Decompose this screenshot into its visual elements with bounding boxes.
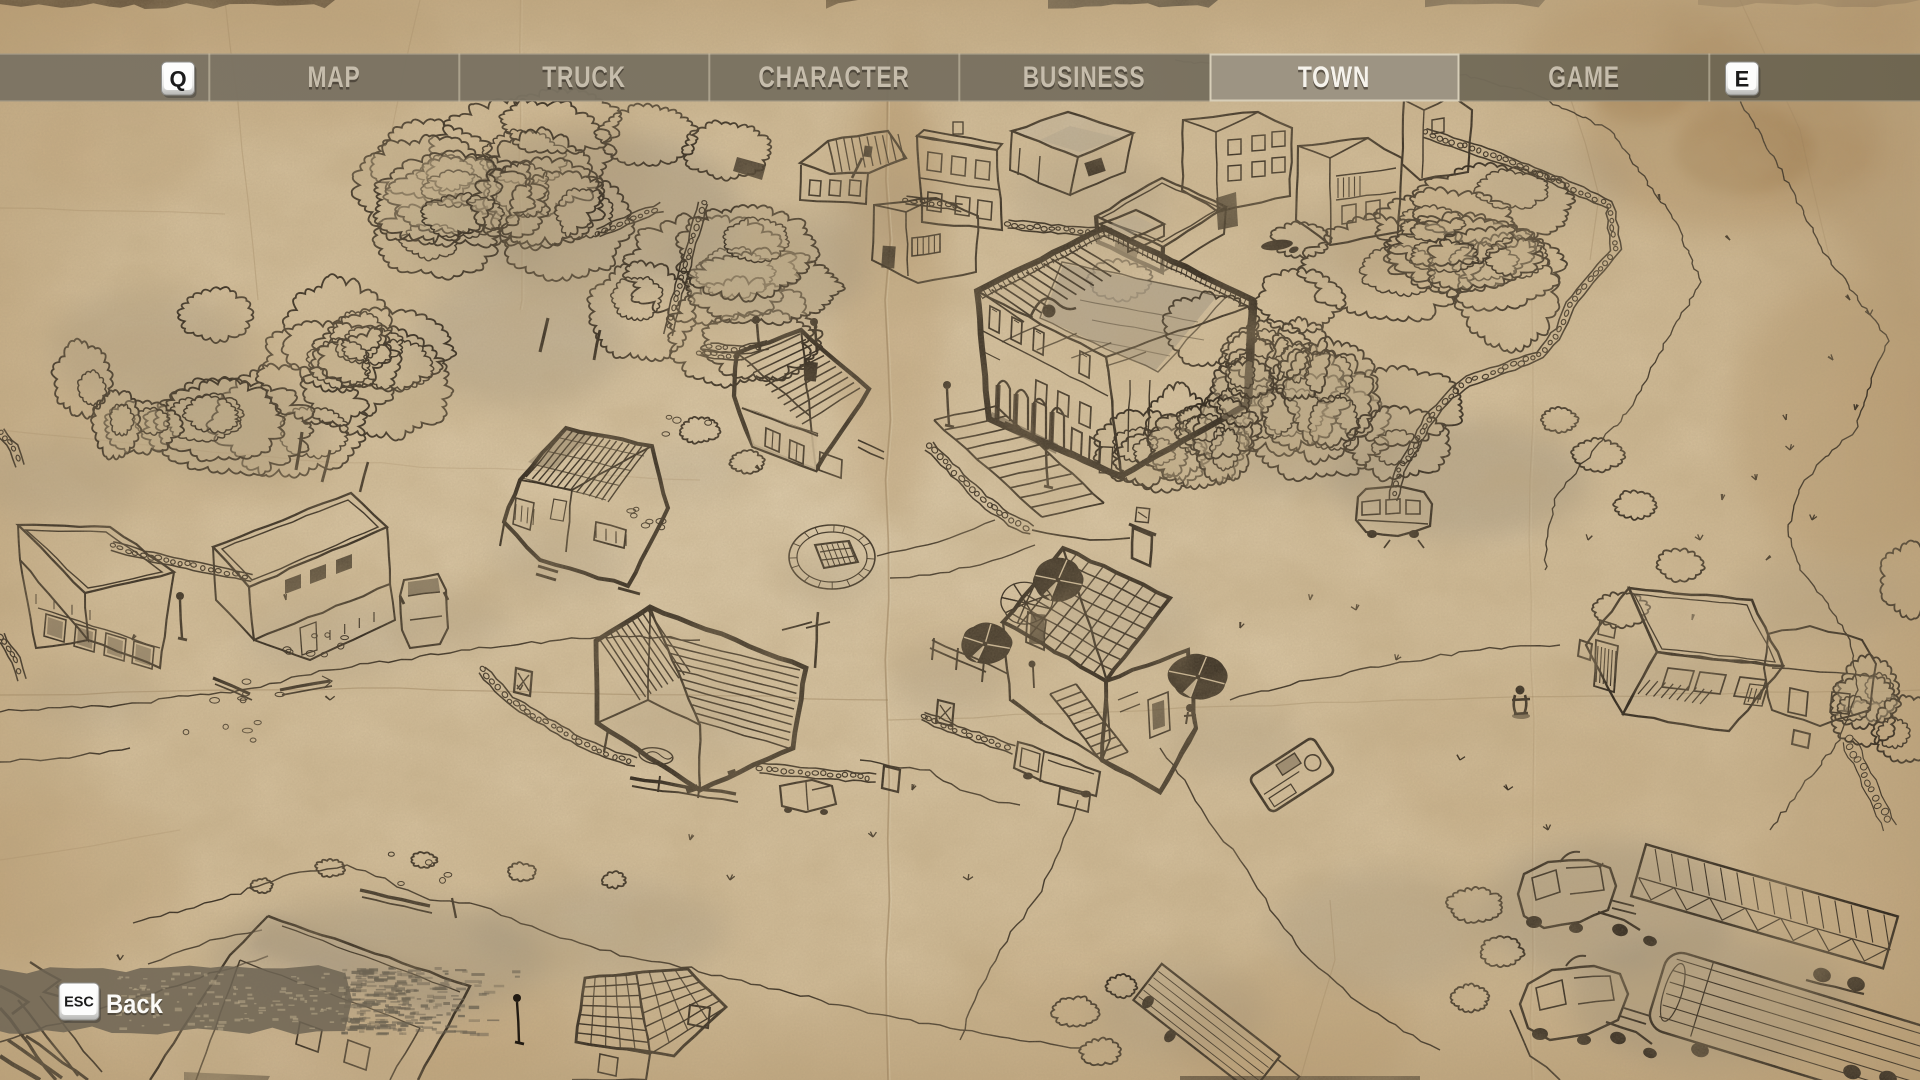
svg-text:E: E [1735,66,1750,91]
svg-text:Back: Back [106,990,164,1020]
svg-text:BUSINESS: BUSINESS [1023,60,1146,94]
svg-text:TOWN: TOWN [1298,60,1370,94]
svg-text:MAP: MAP [308,60,361,94]
svg-text:Q: Q [169,66,186,91]
svg-text:TRUCK: TRUCK [542,60,626,94]
svg-text:ESC: ESC [64,995,94,1011]
svg-text:CHARACTER: CHARACTER [758,60,909,94]
svg-text:GAME: GAME [1548,60,1619,94]
